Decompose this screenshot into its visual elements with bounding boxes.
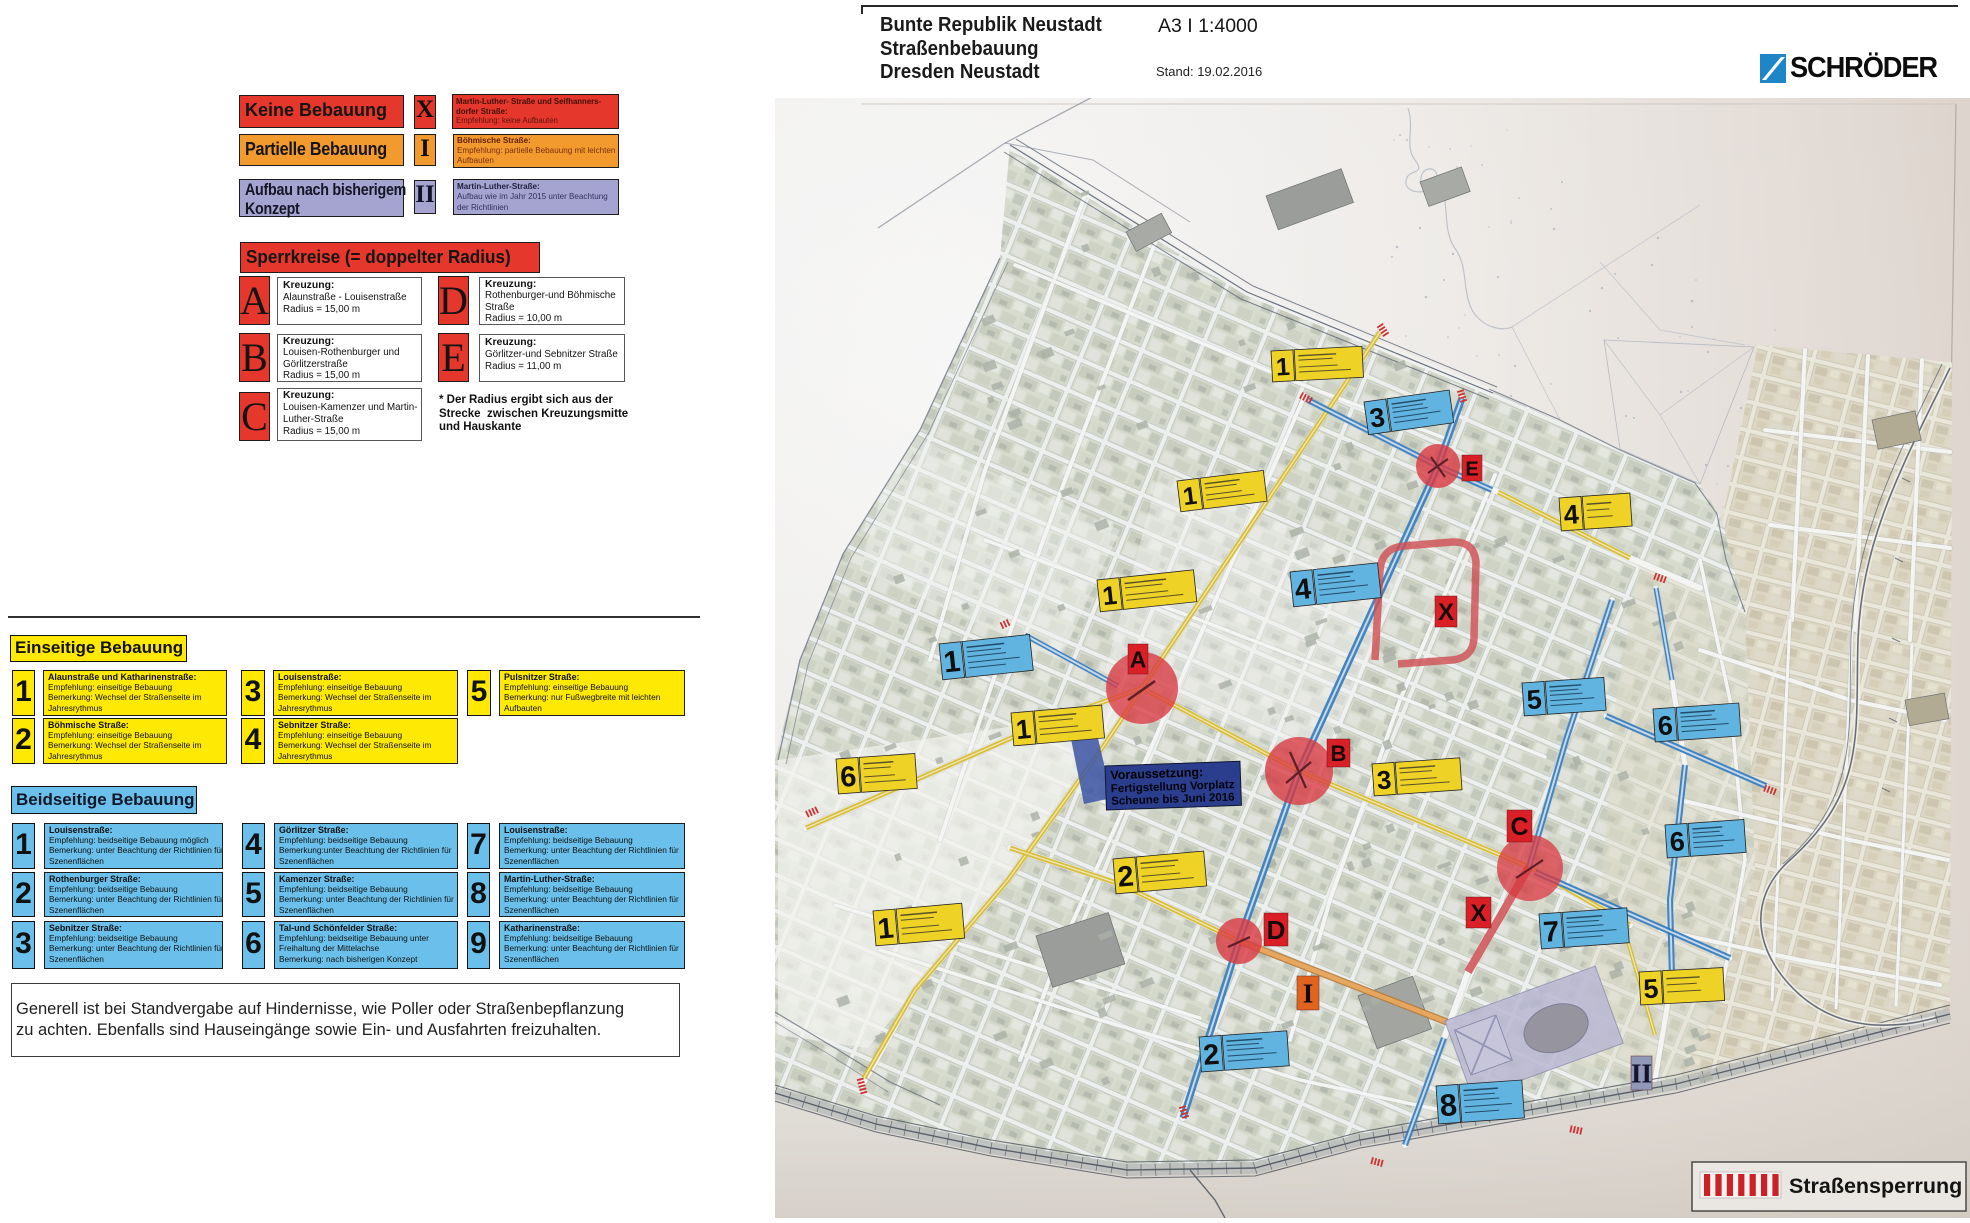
svg-text:1: 1 bbox=[876, 912, 895, 945]
svg-text:A: A bbox=[1130, 646, 1147, 672]
svg-text:C: C bbox=[1510, 813, 1528, 841]
svg-text:4: 4 bbox=[1293, 573, 1312, 607]
svg-text:6: 6 bbox=[839, 761, 857, 794]
svg-text:6: 6 bbox=[1657, 710, 1674, 741]
svg-text:1: 1 bbox=[942, 645, 962, 680]
svg-text:I: I bbox=[1303, 979, 1314, 1009]
svg-text:5: 5 bbox=[1643, 974, 1660, 1005]
svg-text:2: 2 bbox=[1116, 860, 1135, 893]
svg-text:II: II bbox=[1631, 1059, 1652, 1089]
svg-text:6: 6 bbox=[1669, 826, 1686, 857]
svg-text:3: 3 bbox=[1376, 764, 1393, 795]
svg-text:5: 5 bbox=[1526, 684, 1543, 715]
svg-text:X: X bbox=[1470, 900, 1486, 927]
svg-text:E: E bbox=[1465, 458, 1478, 480]
svg-text:Straßensperrung: Straßensperrung bbox=[1789, 1174, 1962, 1198]
svg-text:X: X bbox=[1438, 599, 1454, 626]
svg-text:1: 1 bbox=[1015, 714, 1033, 745]
svg-text:4: 4 bbox=[1563, 499, 1580, 530]
svg-text:8: 8 bbox=[1439, 1087, 1459, 1123]
svg-text:7: 7 bbox=[1542, 916, 1560, 949]
svg-text:D: D bbox=[1267, 915, 1286, 945]
svg-text:B: B bbox=[1331, 741, 1347, 766]
svg-text:2: 2 bbox=[1202, 1039, 1220, 1072]
svg-text:1: 1 bbox=[1275, 353, 1290, 382]
